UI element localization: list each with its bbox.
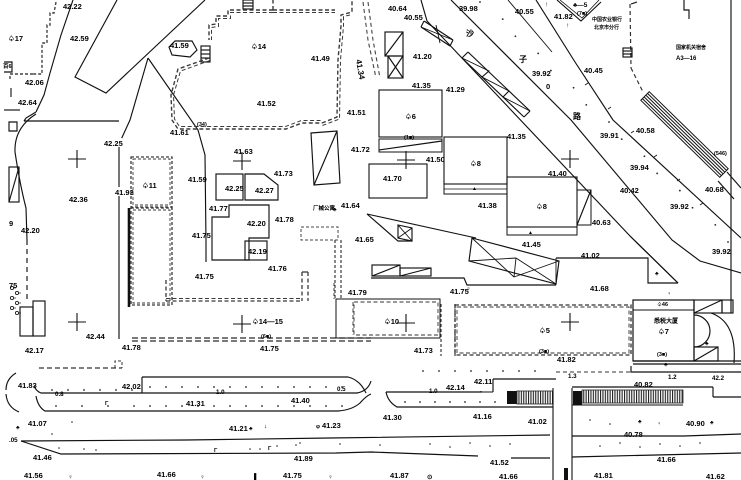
svg-text:41.64: 41.64 [341,201,361,210]
svg-text:41.02: 41.02 [528,417,547,426]
svg-text:42.27: 42.27 [255,186,274,195]
svg-text:40.82: 40.82 [634,380,653,389]
svg-text:41.38: 41.38 [478,201,497,210]
svg-text:42.25: 42.25 [225,184,244,193]
svg-text:42.59: 42.59 [70,34,89,43]
svg-text:♤8: ♤8 [470,159,481,168]
svg-text:41.73: 41.73 [274,169,293,178]
svg-text:φ: φ [316,424,320,430]
svg-text:41.40: 41.40 [548,169,567,178]
svg-text:41.59: 41.59 [170,41,189,50]
svg-text:♤5: ♤5 [539,326,550,335]
svg-text:41.59: 41.59 [188,175,207,184]
svg-text:1.0: 1.0 [216,389,225,396]
svg-text:(1■): (1■) [404,135,414,141]
svg-text:40.42: 40.42 [620,186,639,195]
svg-text:41.46: 41.46 [33,453,52,462]
svg-text:♀: ♀ [667,291,671,297]
svg-text:♣—5: ♣—5 [573,2,588,9]
svg-text:41.66: 41.66 [157,470,176,479]
svg-text:40.63: 40.63 [592,218,611,227]
svg-text:41.20: 41.20 [413,52,432,61]
svg-text:(34): (34) [197,122,207,128]
svg-text:1.2: 1.2 [668,374,677,381]
svg-text:♣: ♣ [710,420,714,426]
svg-text:42.14: 42.14 [446,383,466,392]
svg-text:41.77: 41.77 [209,204,228,213]
svg-text:41.02: 41.02 [581,251,600,260]
svg-text:39.98: 39.98 [459,4,478,13]
svg-text:41.78: 41.78 [275,215,294,224]
svg-text:♣: ♣ [655,271,659,277]
svg-text:♀: ♀ [328,474,333,480]
svg-text:悉税大厦: 悉税大厦 [654,317,679,325]
svg-text:41.35: 41.35 [507,132,526,141]
svg-text:40.90: 40.90 [686,419,705,428]
svg-text:41.81: 41.81 [594,471,613,480]
svg-text:42.20: 42.20 [21,226,40,235]
svg-text:♣: ♣ [16,425,20,431]
svg-text:42.11: 42.11 [474,377,492,386]
svg-text:0.8: 0.8 [55,391,64,398]
svg-text:75: 75 [9,281,17,290]
svg-text:⊙: ⊙ [427,474,433,480]
svg-text:40.68: 40.68 [705,185,724,194]
svg-text:39.91: 39.91 [600,131,619,140]
svg-text:♀: ♀ [200,474,205,480]
svg-text:41.56: 41.56 [24,471,43,480]
svg-text:(3■): (3■) [657,352,667,358]
svg-text:40.58: 40.58 [636,126,655,135]
svg-text:41.65: 41.65 [355,235,374,244]
svg-text:39.92: 39.92 [670,202,689,211]
svg-text:41.21: 41.21 [229,424,248,433]
svg-text:路: 路 [573,111,582,121]
svg-text:41.66: 41.66 [657,455,676,464]
svg-text:41.07: 41.07 [28,419,47,428]
svg-text:♤7: ♤7 [658,327,669,336]
svg-text:41.40: 41.40 [291,396,310,405]
svg-text:41.50: 41.50 [426,155,445,164]
svg-text:40.55: 40.55 [404,13,423,22]
svg-text:41.63: 41.63 [234,147,253,156]
svg-text:♣: ♣ [664,362,668,368]
svg-text:41.75: 41.75 [192,231,211,240]
svg-text:0: 0 [546,82,550,91]
svg-text:40.55: 40.55 [515,7,534,16]
svg-text:♀: ♀ [657,421,661,427]
svg-text:(6■): (6■) [261,334,271,340]
svg-text:41.87: 41.87 [390,471,409,480]
svg-text:41.62: 41.62 [706,472,725,480]
svg-text:♤46: ♤46 [657,301,668,308]
svg-text:41.79: 41.79 [348,288,367,297]
svg-text:♀: ♀ [466,286,471,293]
svg-text:♣: ♣ [333,207,337,213]
svg-text:39.92: 39.92 [712,247,731,256]
svg-text:♤8: ♤8 [536,202,547,211]
svg-text:41.73: 41.73 [414,346,433,355]
svg-text:41.29: 41.29 [446,85,465,94]
svg-text:39.92: 39.92 [532,69,551,78]
svg-text:41.51: 41.51 [347,108,366,117]
svg-text:41.75: 41.75 [195,272,214,281]
svg-text:41.31: 41.31 [186,399,205,408]
svg-text:(7■): (7■) [577,11,587,17]
svg-text:41.49: 41.49 [311,54,330,63]
svg-text:42.2: 42.2 [712,375,725,382]
svg-text:41.75: 41.75 [260,344,279,353]
svg-text:♣: ♣ [249,426,253,432]
svg-text:百6: 百6 [3,62,12,70]
svg-text:♤14—15: ♤14—15 [252,317,283,326]
svg-text:41.89: 41.89 [294,454,313,463]
svg-text:9: 9 [9,219,13,228]
svg-text:中国农业银行: 中国农业银行 [592,16,622,23]
svg-text:41.52: 41.52 [257,99,276,108]
svg-text:41.23: 41.23 [322,421,341,430]
svg-text:41.61: 41.61 [170,128,189,137]
svg-text:41.16: 41.16 [473,412,492,421]
svg-text:沙: 沙 [466,29,474,38]
svg-text:41.82: 41.82 [557,355,576,364]
svg-text:(3■): (3■) [539,349,549,355]
svg-text:42.17: 42.17 [25,346,44,355]
svg-text:40.78: 40.78 [624,430,643,439]
svg-text:▲: ▲ [472,186,477,192]
svg-text:41.52: 41.52 [490,458,509,467]
svg-text:41.83: 41.83 [18,381,37,390]
svg-text:↑: ↑ [545,1,548,8]
svg-text:41.70: 41.70 [383,174,402,183]
svg-text:41.35: 41.35 [412,81,431,90]
svg-text:♤17: ♤17 [8,34,23,43]
svg-text:.05: .05 [9,437,18,444]
svg-text:♤10: ♤10 [384,317,399,326]
svg-text:41.76: 41.76 [268,264,287,273]
svg-text:↓: ↓ [264,423,267,430]
svg-text:(546): (546) [714,151,727,157]
svg-text:♣: ♣ [705,341,709,347]
svg-text:40.45: 40.45 [584,66,603,75]
svg-text:42.64: 42.64 [18,98,38,107]
svg-text:子: 子 [519,55,527,64]
svg-text:♤11: ♤11 [142,181,157,190]
svg-text:41.30: 41.30 [383,413,402,422]
svg-text:41.78: 41.78 [122,343,141,352]
svg-text:41.82: 41.82 [554,12,573,21]
svg-text:↑: ↑ [566,22,569,29]
svg-text:40.64: 40.64 [388,4,408,13]
svg-text:1.3: 1.3 [568,373,577,380]
svg-text:41.45: 41.45 [522,240,541,249]
svg-text:42.44: 42.44 [86,332,106,341]
svg-text:41.66: 41.66 [499,472,518,480]
svg-text:41.68: 41.68 [590,284,609,293]
svg-text:42.36: 42.36 [69,195,88,204]
svg-text:42.06: 42.06 [25,78,44,87]
svg-text:国家机关宿舍: 国家机关宿舍 [676,44,707,51]
svg-text:♤6: ♤6 [405,112,416,121]
svg-text:▌: ▌ [254,473,259,480]
svg-text:♣: ♣ [638,419,642,425]
svg-text:42.20: 42.20 [247,219,266,228]
svg-text:♀: ♀ [68,474,73,480]
svg-text:42.19: 42.19 [248,247,267,256]
svg-text:41.72: 41.72 [351,145,370,154]
svg-text:北京市分行: 北京市分行 [594,24,619,31]
svg-text:♤14: ♤14 [251,42,267,51]
svg-text:41.75: 41.75 [283,471,302,480]
svg-text:42.25: 42.25 [104,139,123,148]
svg-text:1.0: 1.0 [429,388,438,395]
svg-text:39.94: 39.94 [630,163,650,172]
svg-text:▲: ▲ [528,230,533,236]
svg-text:A3—16: A3—16 [676,56,697,62]
